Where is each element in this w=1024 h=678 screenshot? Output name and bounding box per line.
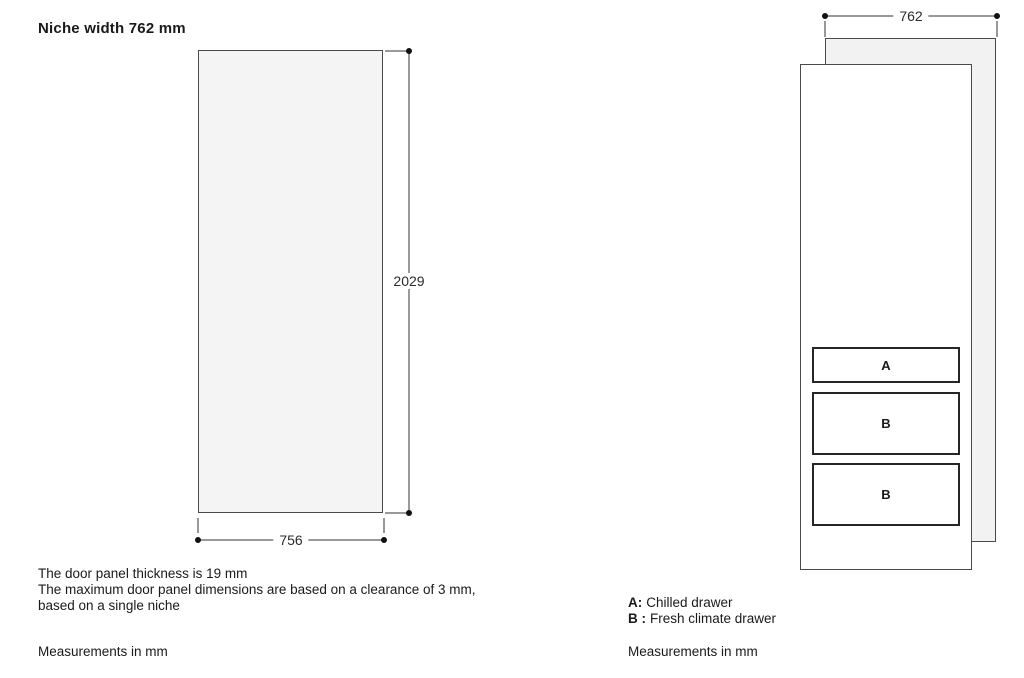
legend-key: B :: [628, 611, 646, 626]
drawer-b-1: B: [812, 392, 960, 455]
height-dimension-connector-bottom: [385, 512, 408, 514]
legend-item: A:Chilled drawer: [628, 595, 776, 611]
drawer-a: A: [812, 347, 960, 383]
note-line: The door panel thickness is 19 mm: [38, 566, 475, 582]
dimension-dot: [381, 537, 387, 543]
dimension-dot: [195, 537, 201, 543]
width-dimension-label: 756: [273, 532, 308, 548]
note-line: based on a single niche: [38, 598, 475, 614]
dimension-dot: [406, 48, 412, 54]
page-title: Niche width 762 mm: [38, 20, 186, 37]
height-dimension-connector-top: [385, 50, 408, 52]
drawer-legend: A:Chilled drawer B :Fresh climate drawer: [628, 595, 776, 627]
niche-width-extension-right: [996, 21, 998, 37]
dimension-dot: [822, 13, 828, 19]
width-dimension-extension-right: [383, 518, 385, 533]
measurements-footer-right: Measurements in mm: [628, 644, 758, 659]
legend-key: A:: [628, 595, 642, 610]
drawer-b-2: B: [812, 463, 960, 526]
installation-diagram-page: Niche width 762 mm 2029 756 The door pan…: [0, 0, 1024, 678]
legend-label: Fresh climate drawer: [650, 611, 776, 626]
height-dimension-label: 2029: [387, 273, 430, 289]
drawer-label: A: [881, 358, 890, 373]
measurements-footer-left: Measurements in mm: [38, 644, 168, 659]
door-panel-notes: The door panel thickness is 19 mm The ma…: [38, 566, 475, 614]
niche-width-extension-left: [824, 21, 826, 37]
drawer-label: B: [881, 487, 890, 502]
width-dimension-extension-left: [197, 518, 199, 533]
dimension-dot: [406, 510, 412, 516]
note-line: The maximum door panel dimensions are ba…: [38, 582, 475, 598]
dimension-dot: [994, 13, 1000, 19]
niche-width-dimension-label: 762: [893, 8, 928, 24]
door-panel-rect: [198, 50, 383, 513]
drawer-label: B: [881, 416, 890, 431]
legend-label: Chilled drawer: [646, 595, 732, 610]
legend-item: B :Fresh climate drawer: [628, 611, 776, 627]
